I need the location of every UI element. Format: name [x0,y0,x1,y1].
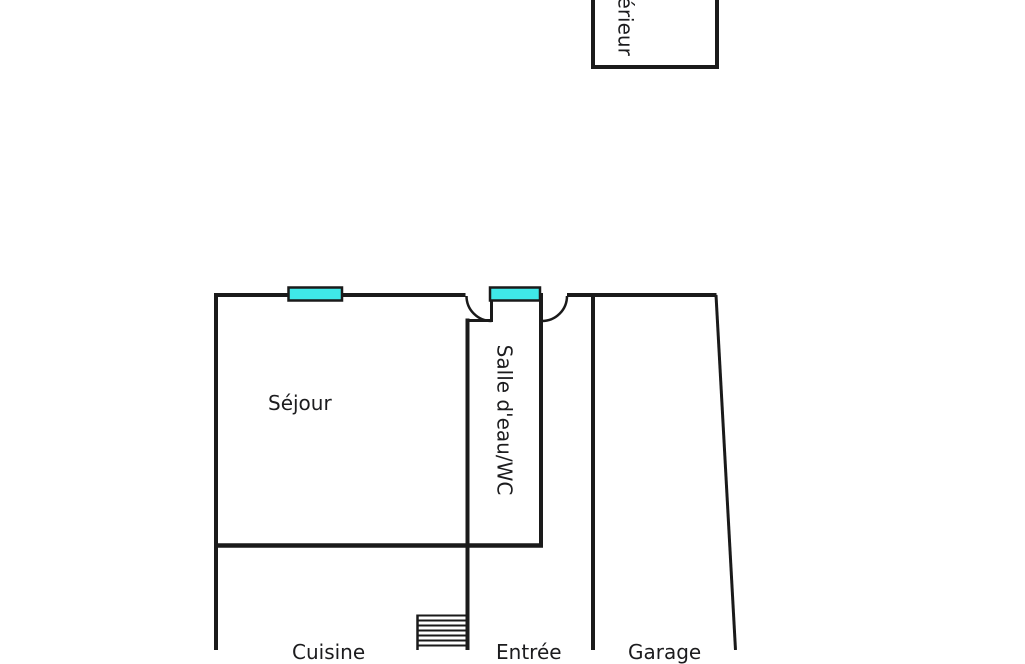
window-marker-sejour [289,288,343,301]
stairs-treads [417,616,466,646]
exterior-balcony-outline [593,0,717,67]
door-swing-arc-left [467,296,492,321]
room-label-exterieur: Extérieur [613,0,636,56]
room-label-salle-eau-wc: Salle d'eau/WC [492,345,515,496]
floor-plan-drawing [0,0,1025,650]
room-label-sejour: Séjour [268,392,332,415]
door-swing-arc-right [542,296,567,321]
room-label-garage: Garage [628,641,701,664]
room-label-entree: Entrée [496,641,562,664]
window-marker-salle-eau [490,288,540,301]
room-label-cuisine: Cuisine [292,641,365,664]
wall-slanted-right [716,295,736,650]
